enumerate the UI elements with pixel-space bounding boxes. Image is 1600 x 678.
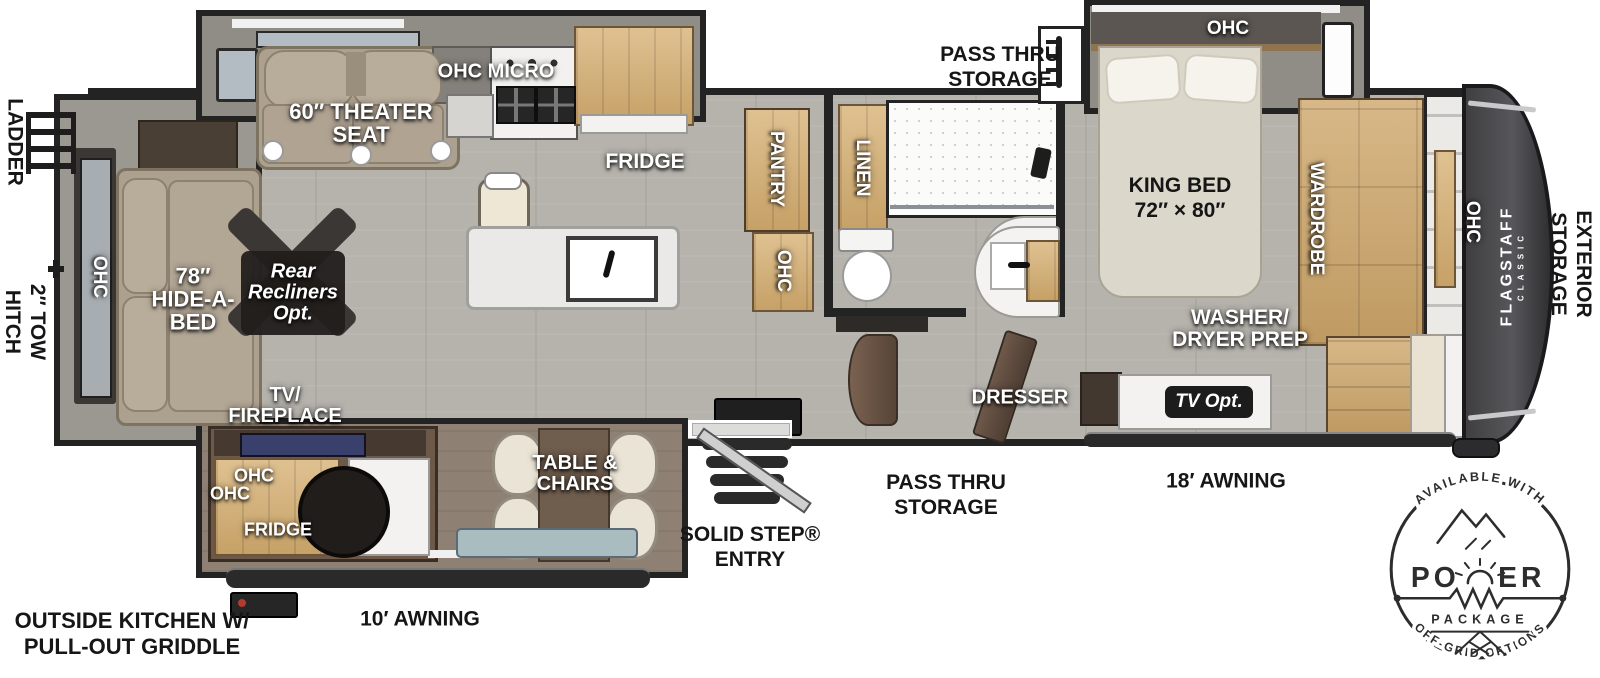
outside-kitchen-label: OUTSIDE KITCHEN W/ PULL-OUT GRIDDLE [15,608,250,660]
tv-stand-shelf [836,316,928,332]
front-ohc-label: OHC [1462,201,1482,243]
pass-thru-bottom-label: PASS THRU STORAGE [886,471,1006,521]
front-cabinet-panel [1410,334,1448,436]
awning-18ft-label: 18′ AWNING [1166,470,1286,495]
outside-kitchen-sink [298,466,390,558]
front-drawer-cabinet [1326,336,1414,436]
pantry-label: PANTRY [766,131,786,207]
pass-thru-top-line1: PASS THRU [940,43,1060,68]
bath-wall-left [824,95,833,315]
tv-stand-panel [848,334,898,426]
solid-step-label: SOLID STEP® ENTRY [680,523,820,573]
tv-opt-label: TV Opt. [1175,392,1243,412]
exterior-storage-label: EXTERIOR STORAGE [1545,210,1595,317]
landing-gear [1452,438,1500,458]
sun-icon [1456,559,1504,583]
recliner-line3: Opt. [248,304,338,325]
brand-name: FLAGSTAFF [1499,206,1517,327]
king-bed-line1: KING BED [1129,174,1232,199]
bed-pillow [1104,53,1181,104]
awning-10ft-bar [226,568,650,588]
badge-power-left: PO [1411,561,1460,593]
island-stool-back [484,172,522,190]
tv-fireplace-line1: TV/ [228,385,341,406]
exterior-storage-line2: STORAGE [1545,210,1570,317]
griddle-knob [238,599,246,607]
washer-dryer-line2: DRYER PREP [1172,329,1308,351]
cupholder [350,144,372,166]
hitch-icon [53,260,59,278]
toilet-bowl [842,250,892,302]
ladder-icon [26,112,76,174]
theater-line1: 60″ THEATER [289,100,432,123]
hide-a-bed-line2: HIDE-A- [151,287,234,310]
toilet-tank [838,228,894,252]
table-chairs-line1: TABLE & [532,453,617,474]
floorplan-canvas: FLAGSTAFF CLASSIC LADDER 2″ TOW HITCH OH… [0,0,1600,678]
washer-dryer-line1: WASHER/ [1172,307,1308,329]
dresser-side-cabinet [1080,372,1122,426]
tv-fireplace-label: TV/ FIREPLACE [228,385,341,427]
tow-hitch-line2: HITCH [0,284,24,360]
bedroom-window [1322,22,1354,98]
pass-thru-top-label: PASS THRU STORAGE [940,43,1060,93]
recliner-line1: Rear [248,262,338,283]
brand-sub-name: CLASSIC [1517,206,1526,327]
solid-step-line1: SOLID STEP® [680,523,820,548]
brand-logo: FLAGSTAFF CLASSIC [1499,206,1526,327]
table-chairs-label: TABLE & CHAIRS [532,453,617,495]
bedroom-step-cabinet [1026,240,1060,302]
bedroom-ohc-label: OHC [1207,19,1249,39]
stove-grate [496,86,536,124]
recliner-option-label: Rear Recliners Opt. [248,262,338,325]
tv-fireplace-line2: FIREPLACE [228,406,341,427]
badge-power-right: ER [1498,561,1545,593]
outside-kitchen-line1: OUTSIDE KITCHEN W/ [15,608,250,634]
ladder-label: LADDER [2,98,27,186]
table-chairs-line2: CHAIRS [532,474,617,495]
outside-kitchen-ohc2-label: OHC [210,485,250,504]
outside-kitchen-fridge-label: FRIDGE [244,521,312,540]
badge-top-arc-text: AVAILABLE WITH [1412,470,1548,508]
hide-a-bed-label: 78″ HIDE-A- BED [151,264,234,333]
island-sink [566,236,658,302]
king-bed-label: KING BED 72″ × 80″ [1129,174,1232,224]
kitchen-counter [446,94,494,138]
hide-a-bed-line1: 78″ [151,264,234,287]
cupholder [430,140,452,162]
hide-a-bed-line3: BED [151,311,234,334]
pass-thru-top-line2: STORAGE [940,68,1060,93]
front-ohc-column [1434,150,1456,288]
power-package-badge: AVAILABLE WITH OFF-GRID OPTIONS PO ER PA… [1368,464,1592,676]
awning-10ft-label: 10′ AWNING [360,608,480,633]
stove-grate [536,86,576,124]
mountains-icon [1438,510,1505,548]
exterior-storage-line1: EXTERIOR [1570,210,1595,317]
kitchen-drawer [580,114,688,134]
pass-thru-bottom-line2: STORAGE [886,496,1006,521]
pass-thru-bottom-line1: PASS THRU [886,471,1006,496]
rear-ohc-label: OHC [89,256,109,298]
vanity-faucet [1008,262,1030,268]
bed-pillow [1182,53,1259,104]
fridge-cabinet [574,26,694,126]
wardrobe-label: WARDROBE [1306,163,1326,276]
solid-step [714,492,780,504]
theater-seat-console [346,52,366,96]
theater-line2: SEAT [289,123,432,146]
badge-package-text: PACKAGE [1431,613,1528,627]
king-bed-line2: 72″ × 80″ [1129,199,1232,224]
awning-18ft-bar [1084,432,1456,447]
tow-hitch-line1: 2″ TOW [24,284,49,360]
fridge-label: FRIDGE [605,151,684,173]
fireplace-screen [240,433,366,457]
ohc-micro-label: OHC MICRO [438,62,555,83]
solid-step-line2: ENTRY [680,548,820,573]
outside-kitchen-line2: PULL-OUT GRIDDLE [15,634,250,660]
slide-trim [232,19,404,28]
theater-seat-label: 60″ THEATER SEAT [289,100,432,146]
linen-label: LINEN [852,140,872,197]
washer-dryer-label: WASHER/ DRYER PREP [1172,307,1308,351]
shower-glass-door [890,205,1054,209]
tow-hitch-label: 2″ TOW HITCH [0,284,49,360]
recliner-line2: Recliners [248,283,338,304]
pantry-ohc-label: OHC [773,250,793,292]
dresser-label: DRESSER [972,388,1069,409]
entry-mat [456,528,638,558]
kitchen-slide-end-window [216,48,258,102]
cupholder [262,140,284,162]
